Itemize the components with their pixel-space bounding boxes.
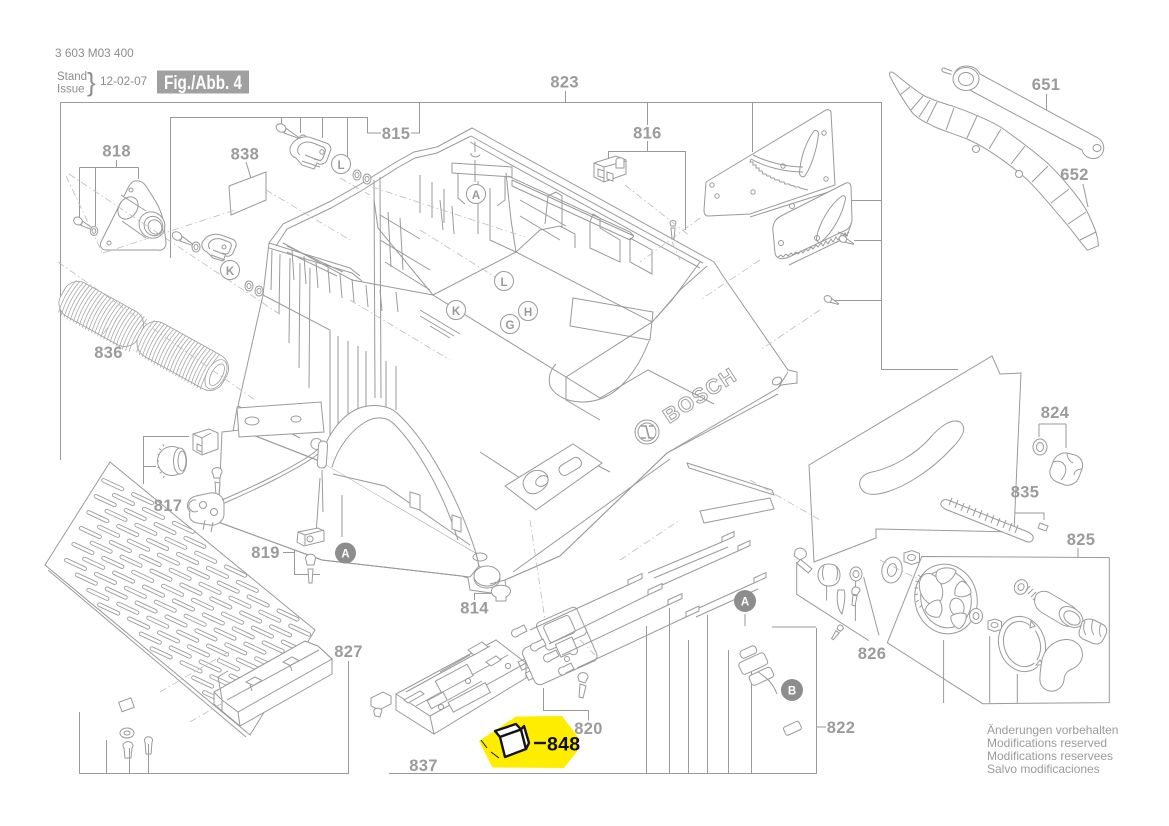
svg-text:Modifications reserved: Modifications reserved: [987, 736, 1107, 750]
svg-text:}: }: [87, 67, 96, 97]
svg-text:838: 838: [231, 145, 259, 163]
svg-text:827: 827: [334, 643, 362, 661]
svg-text:G: G: [506, 320, 515, 332]
svg-text:819: 819: [251, 544, 279, 562]
svg-text:A: A: [472, 190, 480, 202]
svg-text:3 603 M03 400: 3 603 M03 400: [55, 46, 134, 60]
svg-text:825: 825: [1067, 531, 1095, 549]
svg-text:L: L: [500, 277, 507, 289]
svg-text:826: 826: [858, 645, 886, 663]
svg-text:Fig./Abb. 4: Fig./Abb. 4: [164, 73, 242, 94]
svg-text:836: 836: [94, 344, 122, 362]
svg-text:823: 823: [550, 74, 578, 92]
svg-text:A: A: [741, 597, 749, 609]
svg-text:H: H: [524, 307, 532, 319]
svg-text:818: 818: [102, 143, 130, 161]
svg-text:B: B: [788, 686, 796, 698]
svg-text:K: K: [452, 306, 461, 318]
svg-text:Modifications reservees: Modifications reservees: [987, 749, 1113, 763]
svg-text:Issue: Issue: [57, 84, 85, 96]
svg-text:815: 815: [382, 125, 410, 143]
svg-text:814: 814: [460, 600, 489, 618]
svg-text:820: 820: [574, 720, 602, 738]
svg-text:835: 835: [1011, 484, 1039, 502]
svg-text:817: 817: [154, 497, 182, 515]
svg-text:651: 651: [1032, 76, 1060, 94]
svg-text:822: 822: [827, 719, 855, 737]
svg-text:652: 652: [1060, 166, 1088, 184]
svg-text:816: 816: [633, 124, 661, 142]
svg-text:824: 824: [1041, 404, 1070, 422]
svg-text:Änderungen vorbehalten: Änderungen vorbehalten: [987, 723, 1118, 737]
svg-text:K: K: [226, 266, 235, 278]
svg-text:837: 837: [409, 757, 437, 775]
svg-text:Salvo modificaciones: Salvo modificaciones: [987, 762, 1100, 776]
svg-text:A: A: [341, 549, 349, 561]
svg-text:L: L: [337, 160, 344, 172]
svg-text:Stand: Stand: [57, 71, 87, 83]
svg-text:12-02-07: 12-02-07: [100, 74, 147, 88]
